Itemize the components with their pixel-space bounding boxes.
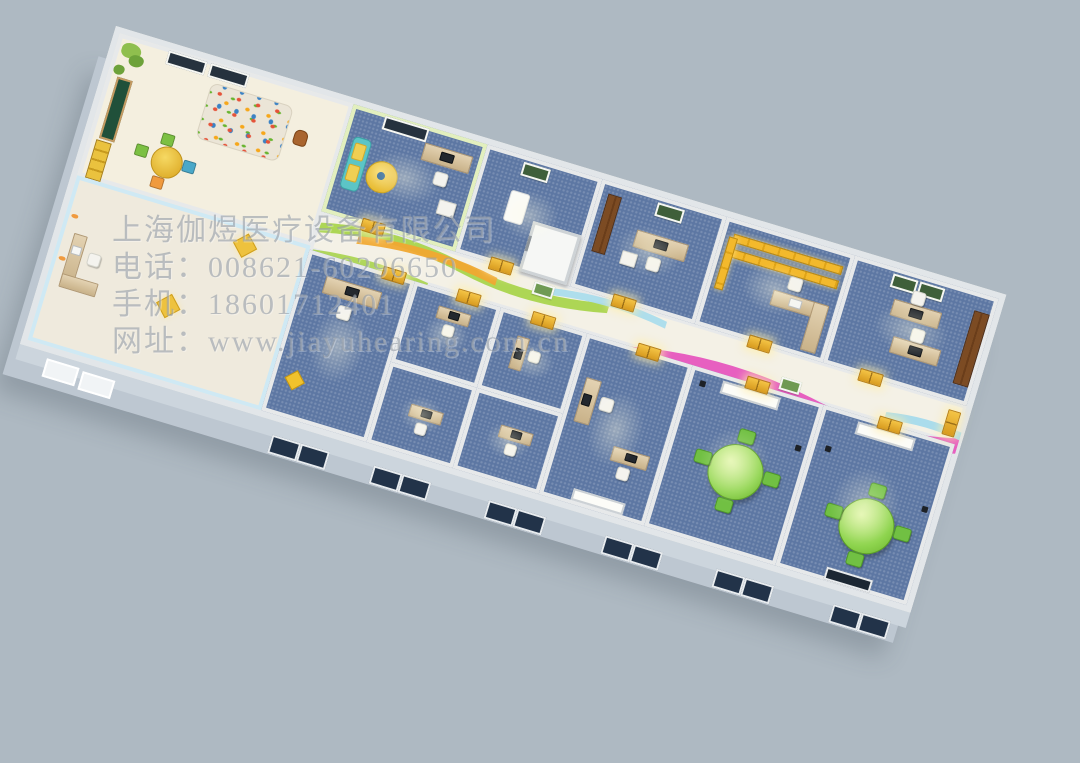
office-chair bbox=[503, 443, 518, 458]
tv-screen bbox=[823, 567, 873, 593]
whiteboard bbox=[571, 488, 626, 515]
office-chair bbox=[432, 171, 449, 188]
wall-speaker-icon bbox=[921, 506, 928, 513]
facade-window bbox=[512, 509, 546, 536]
render-canvas: 上海伽煜医疗设备有限公司 电话：008621-60296650 手机：18601… bbox=[0, 0, 1080, 763]
wood-cabinet bbox=[953, 310, 990, 387]
office-chair bbox=[787, 276, 804, 293]
facade-window bbox=[296, 443, 330, 470]
wall-speaker-icon bbox=[824, 445, 831, 452]
side-table bbox=[619, 250, 638, 268]
wall-speaker-icon bbox=[794, 444, 801, 451]
kids-chair bbox=[134, 143, 150, 158]
floor-diamond-inlay bbox=[233, 233, 257, 257]
group-chair bbox=[761, 471, 781, 489]
kids-chair bbox=[181, 159, 197, 174]
group-chair bbox=[737, 428, 757, 446]
wall-picture bbox=[520, 162, 551, 183]
office-chair bbox=[86, 252, 102, 268]
office-chair bbox=[598, 396, 615, 413]
play-mat bbox=[195, 82, 294, 162]
office-chair bbox=[615, 466, 631, 482]
printer-stand bbox=[435, 199, 457, 219]
teddy-bear-icon bbox=[291, 128, 309, 147]
group-round-table bbox=[701, 437, 771, 507]
tree-decal-icon bbox=[112, 63, 125, 76]
wall-picture bbox=[654, 202, 685, 223]
wood-cabinet bbox=[591, 194, 622, 255]
fish-decal-icon bbox=[58, 255, 66, 261]
window-icon bbox=[165, 50, 207, 75]
group-chair bbox=[892, 525, 912, 543]
exam-chair bbox=[502, 189, 530, 225]
floor-diamond-inlay bbox=[156, 294, 180, 318]
facade-window bbox=[42, 358, 80, 386]
group-chair bbox=[867, 482, 887, 500]
corridor-picture bbox=[531, 281, 555, 300]
ladder-shelf bbox=[85, 139, 112, 182]
window-icon bbox=[382, 116, 430, 143]
building-floorplan bbox=[20, 26, 1006, 613]
facade-window bbox=[740, 577, 774, 604]
facade-window bbox=[77, 371, 115, 399]
kids-chair bbox=[149, 175, 165, 190]
wall-speaker-icon bbox=[699, 380, 706, 387]
office-chair bbox=[441, 324, 456, 339]
booth-door bbox=[525, 235, 532, 251]
chalkboard bbox=[99, 77, 133, 143]
display-shelf bbox=[714, 236, 738, 290]
facade-window bbox=[629, 544, 663, 571]
floor-sign bbox=[285, 370, 305, 390]
office-chair bbox=[413, 422, 428, 437]
fish-decal-icon bbox=[71, 213, 79, 219]
facade-window bbox=[857, 613, 891, 640]
reception-desk bbox=[58, 273, 98, 297]
tree-decal-icon bbox=[127, 53, 145, 69]
office-chair bbox=[644, 256, 661, 273]
kids-chair bbox=[160, 132, 176, 147]
office-chair bbox=[527, 350, 542, 365]
office-chair bbox=[335, 304, 352, 321]
group-round-table bbox=[832, 491, 902, 561]
facade-window bbox=[397, 474, 431, 501]
